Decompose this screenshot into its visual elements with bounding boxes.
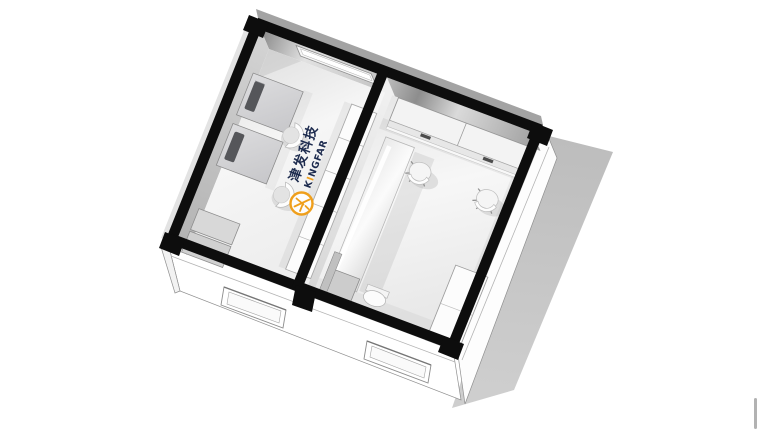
scrollbar-fragment[interactable] (754, 398, 757, 429)
floorplan-render: 津发科技 KINGFAR (0, 0, 758, 429)
kingfar-logo-icon (291, 193, 313, 215)
